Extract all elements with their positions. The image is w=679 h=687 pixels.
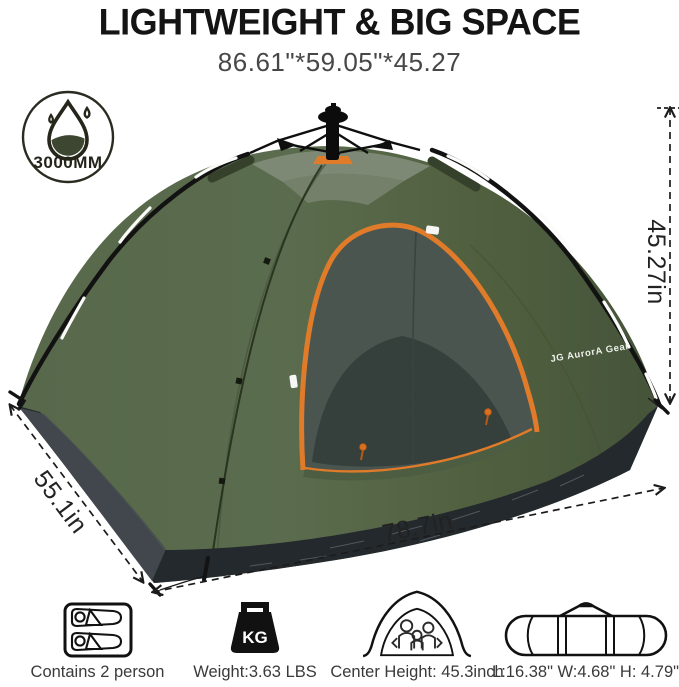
feature-weight: KG Weight:3.63 LBS <box>180 588 330 682</box>
product-infographic: LIGHTWEIGHT & BIG SPACE 86.61"*59.05"*45… <box>0 0 679 687</box>
feature-packed-size-label: L:16.38" W:4.68" H: 4.79" <box>492 663 679 682</box>
feature-row: Contains 2 person KG Weight:3.63 LBS <box>0 588 679 687</box>
tent-illustration: JG AurorA Gear 45.27in 55.1in 78.7in <box>0 0 679 687</box>
feature-capacity-label: Contains 2 person <box>31 663 165 682</box>
feature-packed-size: L:16.38" W:4.68" H: 4.79" <box>492 588 679 682</box>
feature-center-height-label: Center Height: 45.3inch <box>330 663 503 682</box>
feature-capacity: Contains 2 person <box>20 588 175 682</box>
feature-center-height: Center Height: 45.3inch <box>328 588 506 682</box>
kg-weight-icon: KG <box>224 600 286 658</box>
feature-weight-label: Weight:3.63 LBS <box>193 663 317 682</box>
tent-family-icon <box>357 588 477 658</box>
carry-bag-icon <box>503 602 669 658</box>
two-sleepers-icon <box>63 602 133 658</box>
kg-text: KG <box>242 628 268 647</box>
dimension-height-label: 45.27in <box>642 219 670 305</box>
